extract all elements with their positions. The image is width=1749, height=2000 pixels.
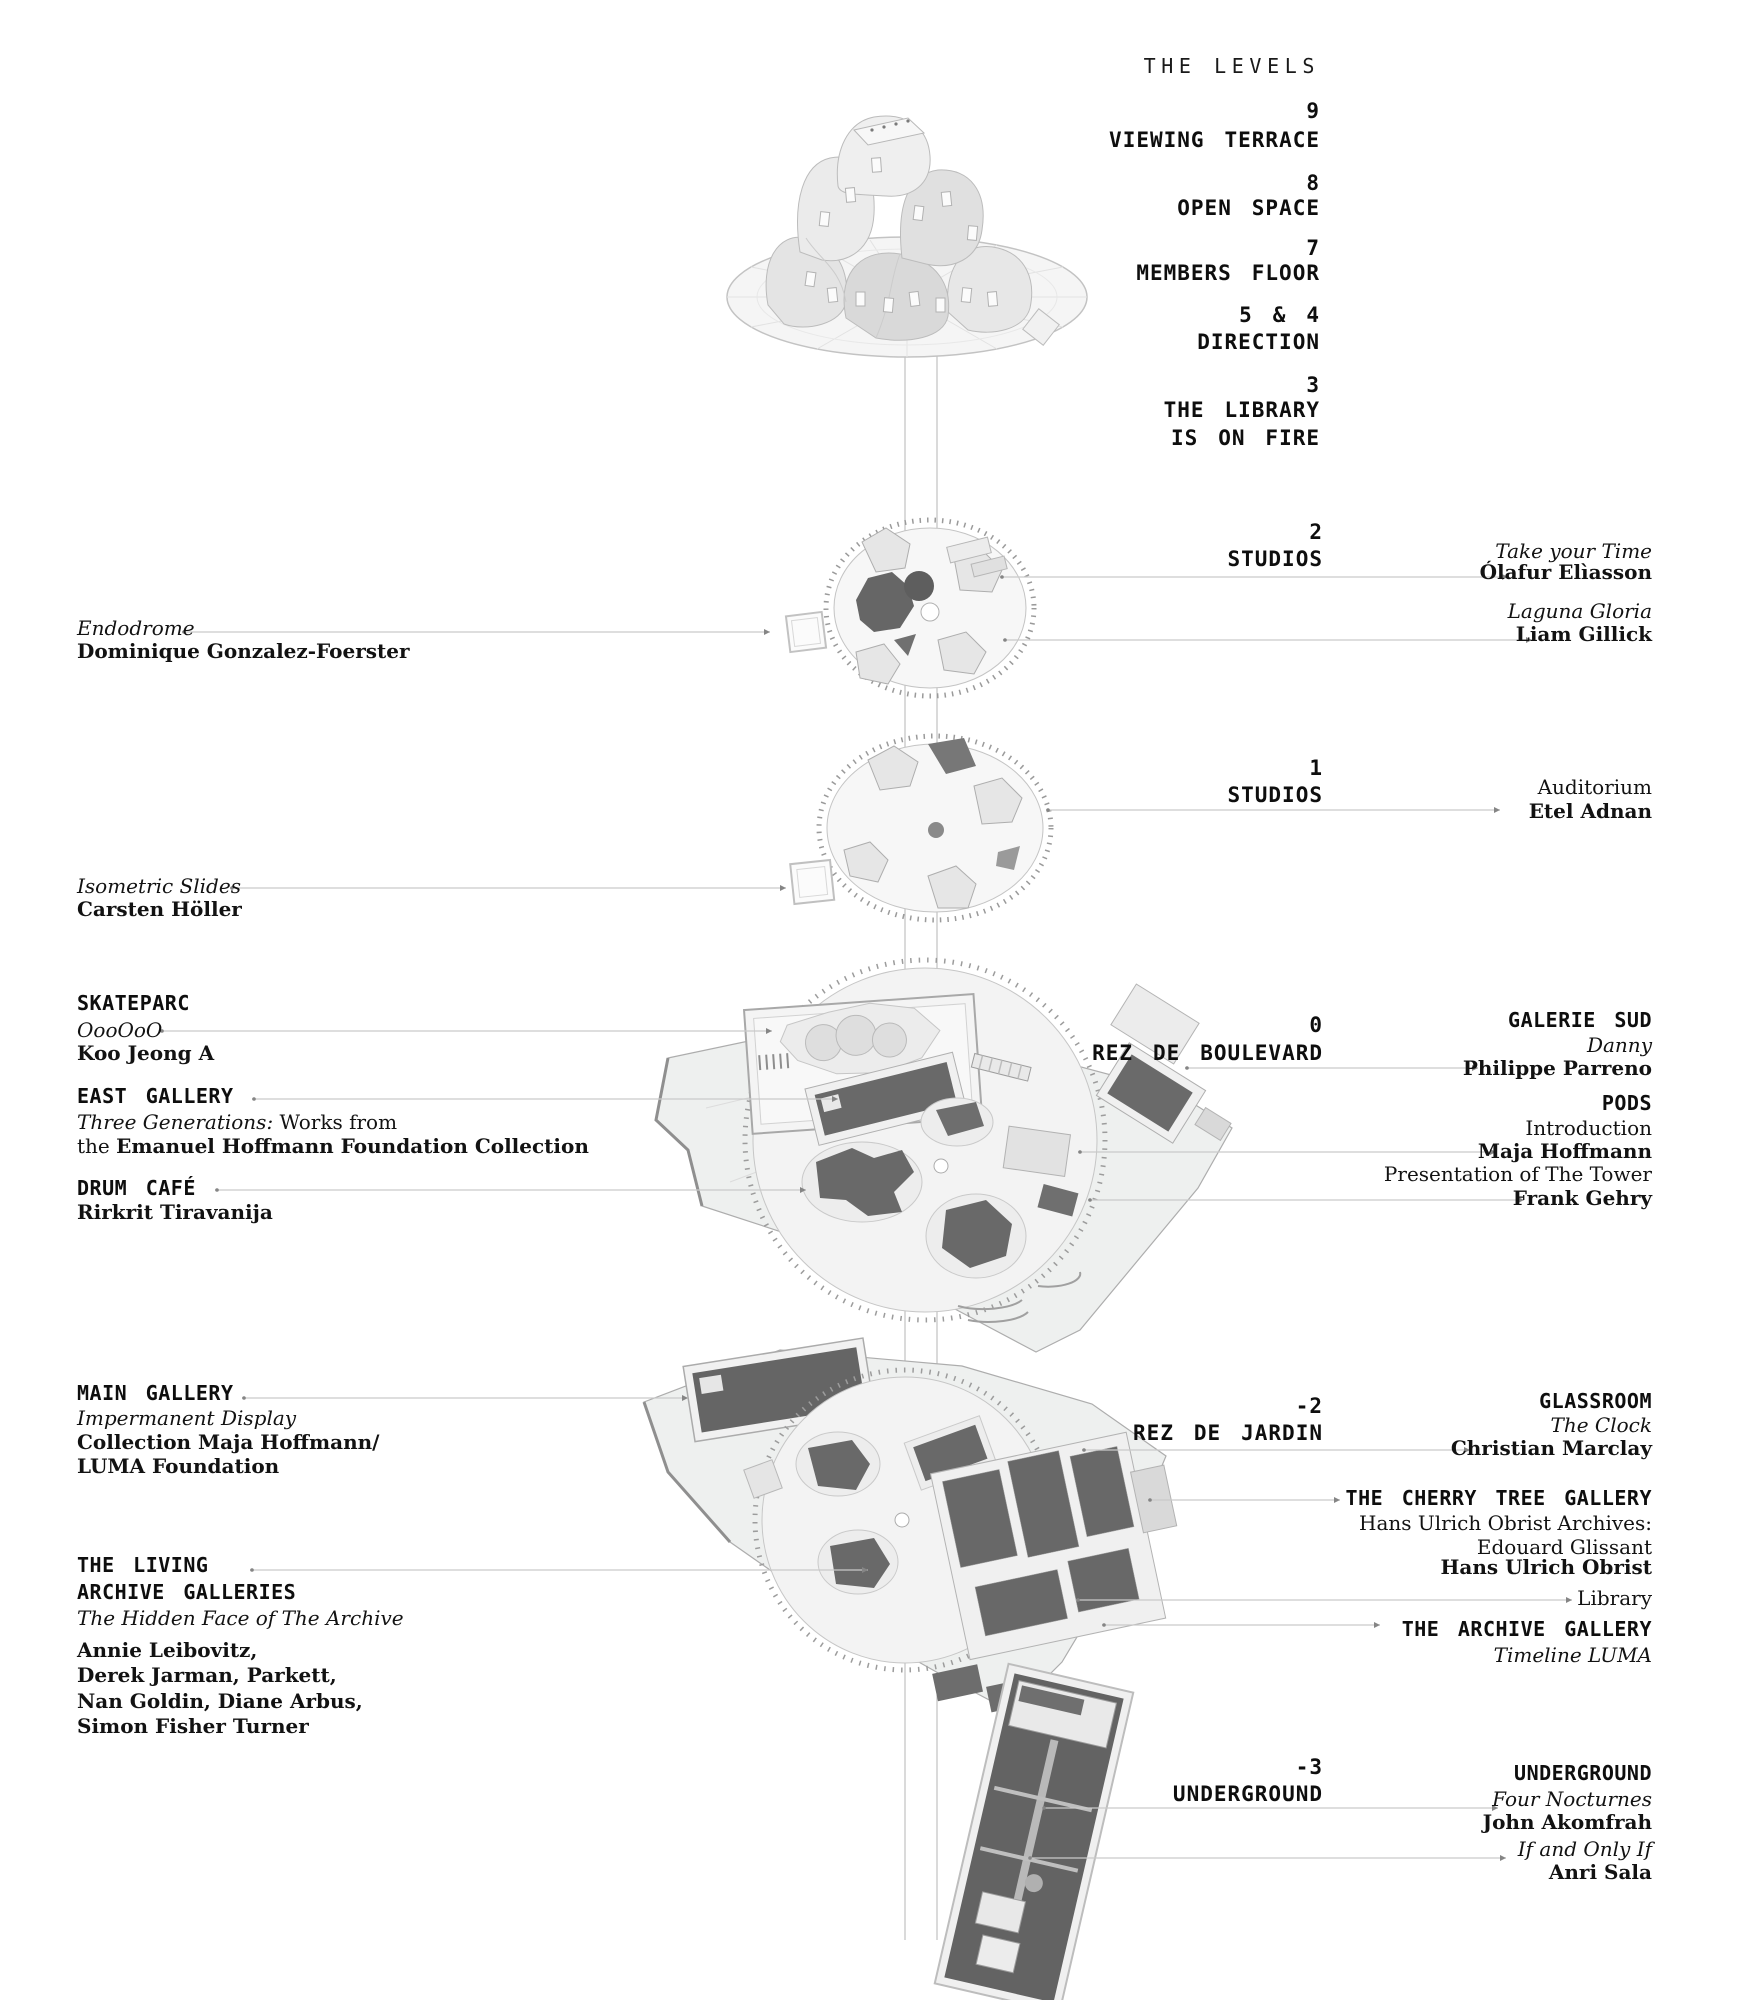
level-8-name: OPEN SPACE (1177, 196, 1320, 220)
artist-name: Koo Jeong A (77, 1042, 214, 1065)
tower-illustration (727, 116, 1087, 357)
work-title: The Hidden Face of The Archive (77, 1607, 404, 1630)
program-item: Presentation of The Tower (1384, 1163, 1652, 1186)
venue-heading-pods: PODS (1602, 1092, 1652, 1115)
artist-name: Ólafur Elìasson (1480, 561, 1652, 584)
level-0-name: REZ DE BOULEVARD (1092, 1041, 1323, 1065)
program-item: Hans Ulrich Obrist Archives: (1359, 1512, 1652, 1535)
venue-heading-living-archive-line1: THE LIVING (77, 1554, 208, 1577)
work-title: Four Nocturnes (1492, 1788, 1652, 1811)
level-9-number: 9 (1306, 99, 1320, 123)
leader-line-sala (1028, 1855, 1506, 1861)
leader-line-isometric (230, 885, 786, 891)
work-title: If and Only If (1518, 1838, 1652, 1861)
venue-heading-glassroom: GLASSROOM (1539, 1390, 1652, 1413)
level-0-plan (656, 960, 1232, 1352)
artist-name: Simon Fisher Turner (77, 1715, 309, 1738)
level-2-annex-square (786, 612, 826, 652)
work-title: The Clock (1551, 1414, 1652, 1437)
level-minus3-number: -3 (1296, 1755, 1323, 1779)
venue-heading-underground: UNDERGROUND (1514, 1762, 1652, 1785)
artist-name: Philippe Parreno (1463, 1057, 1652, 1080)
venue-label-library: Library (1577, 1587, 1652, 1610)
dark-pavilion (904, 571, 934, 601)
venue-heading-archive-gallery: THE ARCHIVE GALLERY (1402, 1618, 1652, 1641)
artist-name: Derek Jarman, Parkett, (77, 1664, 337, 1687)
level-5-4-number: 5 & 4 (1239, 303, 1320, 327)
level-7-name: MEMBERS FLOOR (1136, 261, 1320, 285)
level-2-number: 2 (1309, 520, 1323, 544)
work-title: Impermanent Display (77, 1407, 296, 1430)
level-7-number: 7 (1306, 236, 1320, 260)
work-title: Isometric Slides (77, 875, 241, 898)
artist-name: Christian Marclay (1451, 1437, 1652, 1460)
leader-line-endodrome (182, 629, 770, 635)
work-title-suffix: Works from (273, 1110, 397, 1134)
collection-name: LUMA Foundation (77, 1455, 279, 1478)
venue-name: Auditorium (1538, 776, 1652, 799)
artist-name: John Akomfrah (1483, 1811, 1652, 1834)
leader-line-parreno (1185, 1065, 1478, 1071)
level-9-name: VIEWING TERRACE (1109, 128, 1320, 152)
leader-line-olafur (1000, 574, 1508, 580)
leader-line-main-gallery (242, 1395, 688, 1401)
collection-line: the Emanuel Hoffmann Foundation Collecti… (77, 1135, 589, 1158)
level-5-4-name: DIRECTION (1197, 330, 1320, 354)
program-item: Introduction (1525, 1117, 1652, 1140)
tower-body (766, 116, 1032, 340)
artist-name: Rirkrit Tiravanija (77, 1201, 273, 1224)
artist-name: Nan Goldin, Diane Arbus, (77, 1690, 363, 1713)
level-2-plan (786, 520, 1034, 696)
venue-heading-cherry-tree: THE CHERRY TREE GALLERY (1346, 1487, 1652, 1510)
artist-name: Frank Gehry (1513, 1187, 1652, 1210)
level-minus2-plan (644, 1338, 1207, 1723)
work-title: Timeline LUMA (1494, 1644, 1652, 1667)
artist-name: Maja Hoffmann (1478, 1140, 1652, 1163)
level-3-name-line2: IS ON FIRE (1171, 426, 1320, 450)
collection-prefix: the (77, 1134, 116, 1158)
venue-heading-galerie-sud: GALERIE SUD (1508, 1009, 1652, 1032)
level-minus2-name: REZ DE JARDIN (1133, 1421, 1323, 1445)
level-1-name: STUDIOS (1227, 783, 1323, 807)
venue-heading-main-gallery: MAIN GALLERY (77, 1382, 234, 1405)
level-1-plan (790, 736, 1051, 920)
leader-line-adnan (1046, 807, 1500, 813)
levels-diagram: THE LEVELS 9 VIEWING TERRACE 8 OPEN SPAC… (0, 0, 1749, 2000)
leader-line-skateparc (160, 1028, 772, 1034)
work-title: Endodrome (77, 617, 195, 640)
artist-name: Annie Leibovitz, (77, 1639, 257, 1662)
work-title: Laguna Gloria (1508, 600, 1652, 623)
leader-line-gillick (1003, 637, 1532, 643)
level-1-annex-square (790, 860, 834, 904)
artist-name: Hans Ulrich Obrist (1440, 1556, 1652, 1579)
level-minus3-name: UNDERGROUND (1173, 1782, 1323, 1806)
level-minus2-number: -2 (1296, 1394, 1323, 1418)
venue-heading-east-gallery: EAST GALLERY (77, 1085, 234, 1108)
leader-line-cherry-tree (1148, 1497, 1340, 1503)
level-2-name: STUDIOS (1227, 547, 1323, 571)
venue-heading-drum-cafe: DRUM CAFÉ (77, 1177, 196, 1200)
level-3-number: 3 (1306, 373, 1320, 397)
venue-heading-living-archive-line2: ARCHIVE GALLERIES (77, 1581, 296, 1604)
level-1-number: 1 (1309, 756, 1323, 780)
collection-name: Emanuel Hoffmann Foundation Collection (116, 1134, 589, 1158)
page-title: THE LEVELS (1144, 55, 1320, 78)
artist-name: Carsten Höller (77, 898, 242, 921)
work-title: Three Generations: (77, 1110, 273, 1134)
level-minus3-plan (935, 1664, 1134, 2000)
artist-name: Dominique Gonzalez-Foerster (77, 640, 410, 663)
venue-heading-skateparc: SKATEPARC (77, 992, 190, 1015)
artist-name: Anri Sala (1549, 1861, 1652, 1884)
work-title-line: Three Generations: Works from (77, 1111, 397, 1134)
level-0-number: 0 (1309, 1013, 1323, 1037)
collection-name: Collection Maja Hoffmann/ (77, 1431, 379, 1454)
artist-name: Liam Gillick (1516, 623, 1652, 646)
level-3-name-line1: THE LIBRARY (1164, 398, 1320, 422)
work-title: OooOoO (77, 1019, 162, 1042)
work-title: Danny (1587, 1034, 1652, 1057)
artist-name: Etel Adnan (1529, 800, 1652, 823)
level-8-number: 8 (1306, 171, 1320, 195)
